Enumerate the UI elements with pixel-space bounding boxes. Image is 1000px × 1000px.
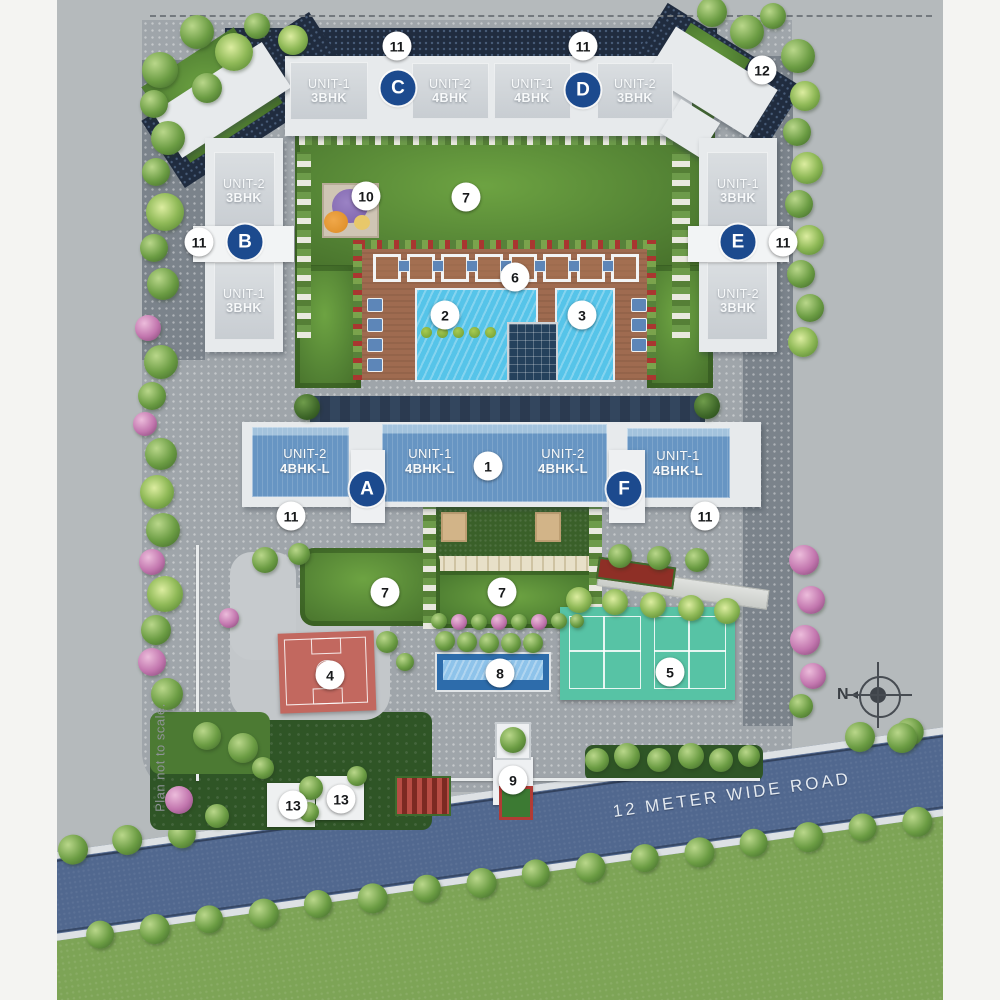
unit-label: UNIT-1 4BHK-L	[384, 440, 476, 484]
garden-path	[423, 556, 602, 571]
tree	[435, 631, 455, 651]
pool-lounger	[367, 298, 383, 312]
flowering-tree	[790, 625, 820, 655]
lily-pad	[469, 327, 480, 338]
playground-shape	[354, 215, 370, 230]
playground-shape	[324, 211, 348, 233]
tree	[140, 90, 168, 118]
tree	[145, 438, 177, 470]
unit-line1: UNIT-1	[717, 177, 759, 191]
tree	[142, 158, 170, 186]
tree	[678, 743, 704, 769]
tree	[551, 613, 567, 629]
amenity-marker-11: 11	[277, 502, 306, 531]
tower-marker-d: D	[566, 73, 601, 108]
tree	[796, 294, 824, 322]
tree	[141, 615, 171, 645]
amenity-marker-9: 9	[499, 766, 528, 795]
court-line	[603, 616, 605, 689]
palm-tree	[790, 81, 820, 111]
seating-patch	[441, 512, 467, 542]
palm-tree	[678, 595, 704, 621]
deck-chair	[568, 260, 580, 272]
deck-chair	[466, 260, 478, 272]
flowering-tree	[135, 315, 161, 341]
garden-hedge-west	[423, 505, 436, 629]
unit-line1: UNIT-1	[308, 77, 350, 91]
tree	[647, 546, 671, 570]
pergola	[475, 254, 503, 282]
pergola	[577, 254, 605, 282]
unit-label: UNIT-1 4BHK	[493, 69, 571, 113]
palm-tree	[566, 587, 592, 613]
unit-label: UNIT-2 3BHK	[596, 69, 674, 113]
tree	[192, 73, 222, 103]
amenity-marker-11: 11	[185, 228, 214, 257]
unit-line1: UNIT-2	[283, 447, 327, 462]
tree	[647, 748, 671, 772]
site-plan: 12 METER WIDE ROAD	[0, 0, 1000, 1000]
amenity-marker-2: 2	[431, 301, 460, 330]
pergola	[373, 254, 401, 282]
amenity-marker-11: 11	[691, 502, 720, 531]
unit-line2: 4BHK-L	[405, 462, 455, 477]
unit-label: UNIT-1 4BHK-L	[632, 442, 724, 486]
court-key	[313, 687, 344, 704]
court-line	[688, 616, 690, 689]
palm-tree	[794, 225, 824, 255]
amenity-marker-7: 7	[452, 183, 481, 212]
flowering-tree	[789, 545, 819, 575]
tree	[57, 833, 90, 867]
tree	[787, 260, 815, 288]
unit-line2: 4BHK-L	[280, 462, 330, 477]
amenity-marker-1: 1	[474, 452, 503, 481]
tower-marker-b: B	[228, 225, 263, 260]
tree	[789, 694, 813, 718]
amenity-marker-3: 3	[568, 301, 597, 330]
flowering-tree	[491, 614, 507, 630]
tree	[501, 633, 521, 653]
pergola	[407, 254, 435, 282]
south-hedge-east	[585, 745, 763, 781]
lily-pad	[453, 327, 464, 338]
unit-label: UNIT-2 4BHK	[411, 69, 489, 113]
tree	[471, 614, 487, 630]
amenity-marker-5: 5	[656, 658, 685, 687]
palm-tree	[140, 475, 174, 509]
site-plan-canvas: 12 METER WIDE ROAD	[57, 0, 943, 1000]
unit-line1: UNIT-1	[656, 449, 700, 464]
tree	[511, 614, 527, 630]
lily-pad	[485, 327, 496, 338]
unit-line1: UNIT-2	[223, 177, 265, 191]
tree	[147, 268, 179, 300]
flower-border-east	[647, 240, 656, 380]
deck-chair	[602, 260, 614, 272]
pool-lounger	[367, 338, 383, 352]
pool-shade-deck	[507, 322, 558, 382]
amenity-marker-6: 6	[501, 263, 530, 292]
pool-lounger	[631, 338, 647, 352]
flower-bed-red	[395, 776, 451, 816]
pergola	[441, 254, 469, 282]
flowering-tree	[219, 608, 239, 628]
deck-chair	[398, 260, 410, 272]
flowering-tree	[165, 786, 193, 814]
amenity-marker-13: 13	[327, 785, 356, 814]
tree	[785, 190, 813, 218]
tree	[252, 547, 278, 573]
lawn-west-plaza	[300, 548, 440, 626]
palm-tree	[640, 592, 666, 618]
pool-lounger	[631, 298, 647, 312]
tree	[205, 804, 229, 828]
tree	[228, 733, 258, 763]
tower-marker-a: A	[350, 472, 385, 507]
unit-line1: UNIT-2	[614, 77, 656, 91]
tree	[608, 544, 632, 568]
palm-tree	[215, 33, 253, 71]
amenity-marker-11: 11	[569, 32, 598, 61]
tree	[288, 543, 310, 565]
unit-line2: 4BHK-L	[653, 464, 703, 479]
palm-tree	[278, 25, 308, 55]
tree	[783, 118, 811, 146]
tree	[730, 15, 764, 49]
unit-line2: 3BHK	[720, 301, 756, 315]
lily-pad	[421, 327, 432, 338]
tower-marker-c: C	[381, 71, 416, 106]
boundary-wall-south	[430, 778, 760, 781]
unit-line2: 3BHK	[617, 91, 653, 105]
tree	[570, 614, 584, 628]
tree	[193, 722, 221, 750]
flowering-tree	[133, 412, 157, 436]
tree	[244, 13, 270, 39]
unit-line1: UNIT-1	[408, 447, 452, 462]
tree	[142, 52, 178, 88]
deck-chair	[534, 260, 546, 272]
tree	[760, 3, 786, 29]
unit-line2: 4BHK	[432, 91, 468, 105]
amenity-marker-7: 7	[488, 578, 517, 607]
pergola	[611, 254, 639, 282]
tree	[180, 15, 214, 49]
tree	[376, 631, 398, 653]
unit-line2: 3BHK	[226, 191, 262, 205]
north-indicator: N	[827, 660, 937, 730]
flower-border-west	[353, 240, 362, 380]
tree	[138, 382, 166, 410]
court-line	[654, 650, 726, 652]
tree	[685, 548, 709, 572]
amenity-marker-7: 7	[371, 578, 400, 607]
unit-label: UNIT-1 3BHK	[707, 169, 769, 213]
flowering-tree	[531, 614, 547, 630]
amenity-marker-10: 10	[352, 182, 381, 211]
unit-label: UNIT-2 4BHK-L	[259, 440, 351, 484]
unit-line1: UNIT-1	[223, 287, 265, 301]
tree	[694, 393, 720, 419]
amenity-marker-8: 8	[486, 659, 515, 688]
amenity-marker-11: 11	[383, 32, 412, 61]
flowering-tree	[138, 648, 166, 676]
tree	[140, 234, 168, 262]
amenity-marker-11: 11	[769, 228, 798, 257]
palm-tree	[146, 193, 184, 231]
palm-tree	[791, 152, 823, 184]
pool-lounger	[631, 318, 647, 332]
unit-label: UNIT-1 3BHK	[290, 69, 368, 113]
tree	[523, 633, 543, 653]
seating-patch	[535, 512, 561, 542]
tree	[585, 748, 609, 772]
tree	[738, 745, 760, 767]
pergola	[543, 254, 571, 282]
tree	[614, 743, 640, 769]
badminton-court	[560, 607, 735, 700]
boundary-dashed-line	[150, 15, 932, 17]
tree	[252, 757, 274, 779]
flower-border-north	[360, 240, 652, 249]
unit-line1: UNIT-2	[717, 287, 759, 301]
amenity-marker-4: 4	[316, 661, 345, 690]
unit-line2: 3BHK	[226, 301, 262, 315]
tower-marker-e: E	[721, 225, 756, 260]
palm-tree	[714, 598, 740, 624]
tree	[457, 632, 477, 652]
amenity-marker-13: 13	[279, 791, 308, 820]
tower-marker-f: F	[607, 472, 642, 507]
deck-chair	[432, 260, 444, 272]
court-key	[311, 637, 342, 654]
tree	[146, 513, 180, 547]
unit-label: UNIT-1 3BHK	[213, 279, 275, 323]
unit-line1: UNIT-2	[541, 447, 585, 462]
tree	[151, 121, 185, 155]
tree	[500, 727, 526, 753]
unit-line2: 3BHK	[311, 91, 347, 105]
unit-line2: 4BHK-L	[538, 462, 588, 477]
amenity-marker-12: 12	[748, 56, 777, 85]
tree	[709, 748, 733, 772]
unit-label: UNIT-2 3BHK	[213, 169, 275, 213]
tree	[396, 653, 414, 671]
hedge-column-west	[297, 152, 311, 338]
unit-label: UNIT-2 4BHK-L	[517, 440, 609, 484]
palm-tree	[147, 576, 183, 612]
flowering-tree	[451, 614, 467, 630]
tree	[294, 394, 320, 420]
scale-note: Plan not to scale.	[153, 688, 168, 828]
flowering-tree	[139, 549, 165, 575]
tree	[479, 633, 499, 653]
tree	[144, 345, 178, 379]
compass-cross-h	[846, 694, 912, 696]
palm-tree	[602, 589, 628, 615]
unit-line2: 4BHK	[514, 91, 550, 105]
pool-lounger	[367, 318, 383, 332]
tree	[347, 766, 367, 786]
flowering-tree	[797, 586, 825, 614]
tree	[431, 613, 447, 629]
court-line	[569, 650, 641, 652]
flowering-tree	[800, 663, 826, 689]
unit-line1: UNIT-2	[429, 77, 471, 91]
palm-tree	[788, 327, 818, 357]
pool-lounger	[367, 358, 383, 372]
unit-label: UNIT-2 3BHK	[707, 279, 769, 323]
unit-line1: UNIT-1	[511, 77, 553, 91]
unit-line2: 3BHK	[720, 191, 756, 205]
tree	[781, 39, 815, 73]
